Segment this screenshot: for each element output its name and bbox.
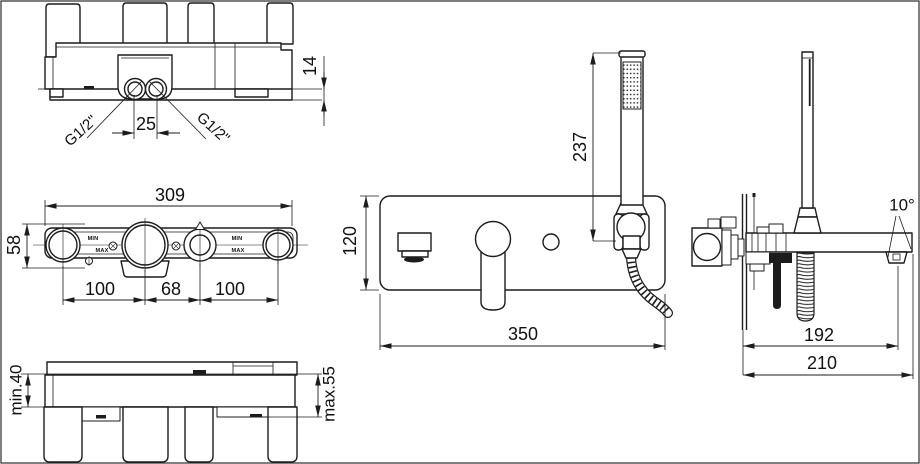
dim-58-label: 58 — [4, 235, 24, 255]
dim-min40-label: min.40 — [7, 364, 26, 415]
angle-10-label: 10° — [889, 196, 915, 215]
drawing-canvas: 25 14 G1/2" G1/2" MIN MAX — [0, 0, 920, 464]
min-label-1: MIN — [88, 236, 99, 242]
dim-100-left-label: 100 — [85, 279, 115, 299]
spray-face — [623, 62, 641, 109]
handshower-holder — [614, 203, 649, 258]
dim-max55-label: max.55 — [320, 366, 339, 422]
view-rough-in-side: min.40 max.55 — [7, 362, 339, 462]
min-label-2: MIN — [232, 236, 243, 242]
mixer-lever — [476, 222, 511, 311]
coiled-hose-side — [797, 253, 814, 321]
lever-side — [769, 253, 792, 309]
dim-309-label: 309 — [155, 185, 185, 205]
dim-350-label: 350 — [508, 324, 538, 344]
dim-68-label: 68 — [161, 279, 181, 299]
dim-210-label: 210 — [807, 353, 837, 373]
body-bar — [45, 228, 297, 258]
dim-237-label: 237 — [570, 132, 590, 162]
diverter-button — [543, 234, 559, 250]
spout-bar — [746, 233, 912, 252]
body-side — [45, 375, 295, 407]
flange-bar — [47, 362, 297, 375]
dim-100-right-label: 100 — [215, 279, 245, 299]
handshower-side — [794, 52, 821, 233]
in-wall-body — [692, 217, 744, 266]
dim-120-label: 120 — [340, 226, 360, 256]
view-trim-front: 237 120 350 — [340, 51, 668, 350]
thread-size-right-label: G1/2" — [193, 109, 233, 147]
max-label-2: MAX — [231, 248, 244, 254]
max-label-1: MAX — [95, 248, 108, 254]
technical-drawing-sheet: 25 14 G1/2" G1/2" MIN MAX — [0, 0, 920, 464]
dim-192-label: 192 — [804, 325, 834, 345]
dim-25-label: 25 — [136, 114, 156, 134]
diverter-marker — [196, 222, 205, 230]
thread-size-left-label: G1/2" — [61, 112, 101, 150]
handshower — [619, 51, 645, 205]
view-rough-in-top: 25 14 G1/2" G1/2" — [38, 3, 324, 150]
dim-14-label: 14 — [300, 56, 320, 76]
spout-aerator — [886, 252, 907, 263]
view-rough-in-front: MIN MAX MIN MAX 309 58 100 68 100 — [4, 185, 308, 305]
view-trim-side: 10° 192 210 — [692, 52, 915, 379]
